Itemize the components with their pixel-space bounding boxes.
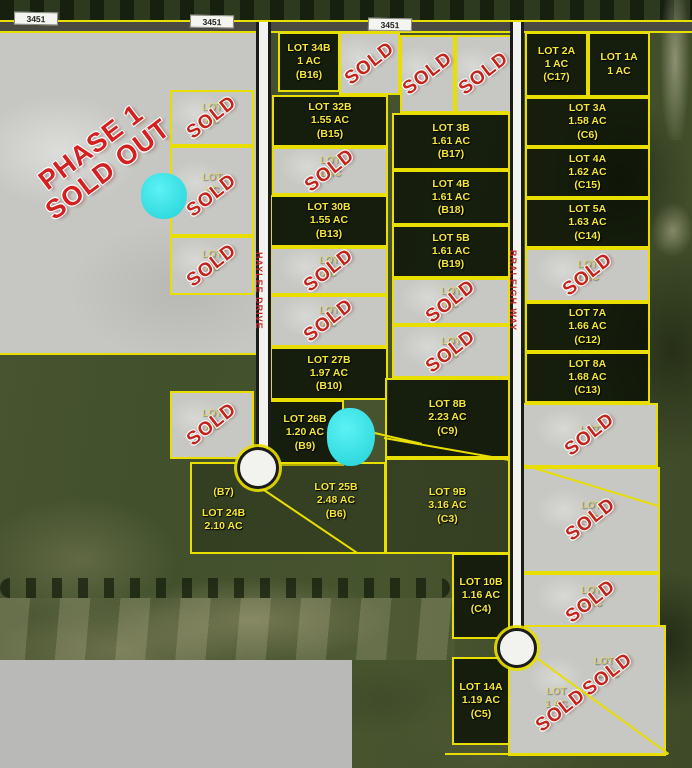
pond — [141, 173, 187, 219]
lot-8b-label: LOT 8B2.23 AC(C9) — [387, 380, 508, 456]
highway-3451-label: 3451 — [368, 18, 412, 32]
lot-5a: LOT 5A1.63 AC(C14) — [525, 198, 650, 248]
lot-24b-label: (B7)LOT 24B2.10 AC — [202, 486, 245, 533]
lot-27b-label: LOT 27B1.97 AC(B10) — [272, 349, 386, 398]
lot-1a-label: LOT 1A1 AC — [590, 34, 648, 95]
lot-3b: LOT 3B1.61 AC(B17) — [392, 113, 510, 170]
lot-32b: LOT 32B1.55 AC(B15) — [272, 95, 388, 147]
pond — [327, 408, 375, 466]
plat-map: LOT 34B1 AC(B16)LOT 32B1.55 AC(B15)LOT 3… — [0, 0, 692, 768]
blank-gray-overlay — [0, 660, 352, 768]
lot-5b: LOT 5B1.61 AC(B19) — [392, 225, 510, 278]
haylee-drive-road — [256, 22, 271, 454]
lot-10b-label: LOT 10B1.16 AC(C4) — [454, 555, 508, 637]
lot-9b: LOT 9B3.16 AC(C3) — [385, 458, 510, 554]
lot-sold-right-2-sold-stamp: SOLD — [561, 409, 619, 461]
lot-25b: LOT 25B2.48 AC(B6) — [286, 466, 386, 536]
lot-1a: LOT 1A1 AC — [588, 32, 650, 97]
lot-7a: LOT 7A1.66 AC(C12) — [525, 302, 650, 352]
lot-sold-right-1-sold-stamp: SOLD — [558, 249, 616, 301]
lot-4b-label: LOT 4B1.61 AC(B18) — [394, 172, 508, 223]
lot-sold-b-3: LOTACSOLD — [270, 295, 388, 347]
lot-sold-right-3: LOTACSOLD — [522, 467, 660, 573]
lot-14a-label: LOT 14A1.19 AC(C5) — [454, 659, 508, 743]
lot-8a: LOT 8A1.68 AC(C13) — [525, 352, 650, 403]
lot-34b-label: LOT 34B1 AC(B16) — [280, 34, 338, 90]
lot-sold-left-3: LOTACSOLD — [170, 236, 254, 295]
lot-sold-top-1-sold-stamp: SOLD — [340, 37, 398, 89]
lot-3b-label: LOT 3B1.61 AC(B17) — [394, 115, 508, 168]
lot-sold-b-2-sold-stamp: SOLD — [300, 245, 358, 297]
lot-34b: LOT 34B1 AC(B16) — [278, 32, 340, 92]
lot-5a-label: LOT 5A1.63 AC(C14) — [527, 200, 648, 246]
lot-sold-mid-2: LOTACSOLD — [392, 325, 510, 378]
lot-3a: LOT 3A1.58 AC(C6) — [525, 97, 650, 147]
lot-sold-right-1: LOT1 ACSOLD — [525, 248, 650, 302]
lot-layer: LOT 34B1 AC(B16)LOT 32B1.55 AC(B15)LOT 3… — [0, 0, 692, 768]
highway-3451-label: 3451 — [190, 15, 234, 29]
lot-9b-label: LOT 9B3.16 AC(C3) — [387, 460, 508, 552]
lot-2a-label: LOT 2A1 AC(C17) — [527, 34, 586, 95]
braleigh-cul-de-sac — [497, 628, 537, 668]
lot-sold-b-1-sold-stamp: SOLD — [301, 145, 359, 197]
lot-sold-top-3: SOLD — [455, 35, 512, 113]
lot-sold-right-4: LOT2 ACSOLD — [522, 573, 660, 630]
lot-sold-b-1: LOT1 ACSOLD — [272, 147, 388, 195]
lot-4a-label: LOT 4A1.62 AC(C15) — [527, 149, 648, 196]
lot-sold-top-2: SOLD — [400, 35, 455, 113]
lot-sold-right-4-sold-stamp: SOLD — [562, 575, 620, 627]
lot-25b-label: LOT 25B2.48 AC(B6) — [286, 466, 386, 536]
subdivision-bottom-boundary — [445, 753, 668, 755]
lot-sold-top-1: SOLD — [339, 32, 400, 95]
lot-7a-label: LOT 7A1.66 AC(C12) — [527, 304, 648, 350]
lot-32b-label: LOT 32B1.55 AC(B15) — [274, 97, 386, 145]
highway-3451-label: 3451 — [14, 12, 58, 26]
lot-sold-mid-2-sold-stamp: SOLD — [422, 325, 480, 377]
lot-14a: LOT 14A1.19 AC(C5) — [452, 657, 510, 745]
lot-4b: LOT 4B1.61 AC(B18) — [392, 170, 510, 225]
lot-sold-b-3-sold-stamp: SOLD — [300, 295, 358, 347]
lot-2a: LOT 2A1 AC(C17) — [525, 32, 588, 97]
lot-30b-label: LOT 30B1.55 AC(B13) — [272, 197, 386, 245]
lot-sold-mid-1-sold-stamp: SOLD — [422, 275, 480, 327]
lot-4a: LOT 4A1.62 AC(C15) — [525, 147, 650, 198]
lot-sold-b-2: LOTACSOLD — [270, 247, 388, 295]
haylee-drive-street-name: HAYLEE DRIVE — [254, 252, 264, 330]
lot-sold-right-2: LOTSOLD — [522, 403, 658, 467]
lot-27b: LOT 27B1.97 AC(B10) — [270, 347, 388, 400]
haylee-cul-de-sac — [237, 447, 279, 489]
lot-10b: LOT 10B1.16 AC(C4) — [452, 553, 510, 639]
lot-sold-corner-upper: LOT 12 ACSOLD — [556, 632, 660, 717]
highway-3451-road — [0, 20, 692, 33]
lot-5b-label: LOT 5B1.61 AC(B19) — [394, 227, 508, 276]
lot-8b: LOT 8B2.23 AC(C9) — [385, 378, 510, 458]
lot-sold-left-4: LOTACSOLD — [170, 391, 254, 459]
lot-3a-label: LOT 3A1.58 AC(C6) — [527, 99, 648, 145]
lot-8a-label: LOT 8A1.68 AC(C13) — [527, 354, 648, 401]
lot-30b: LOT 30B1.55 AC(B13) — [270, 195, 388, 247]
lot-sold-mid-1: LOTACSOLD — [392, 278, 510, 325]
lot-sold-top-3-sold-stamp: SOLD — [454, 48, 512, 100]
lot-sold-top-2-sold-stamp: SOLD — [398, 48, 456, 100]
braleigh-way-street-name: BRALEIGH WAY — [508, 250, 518, 331]
